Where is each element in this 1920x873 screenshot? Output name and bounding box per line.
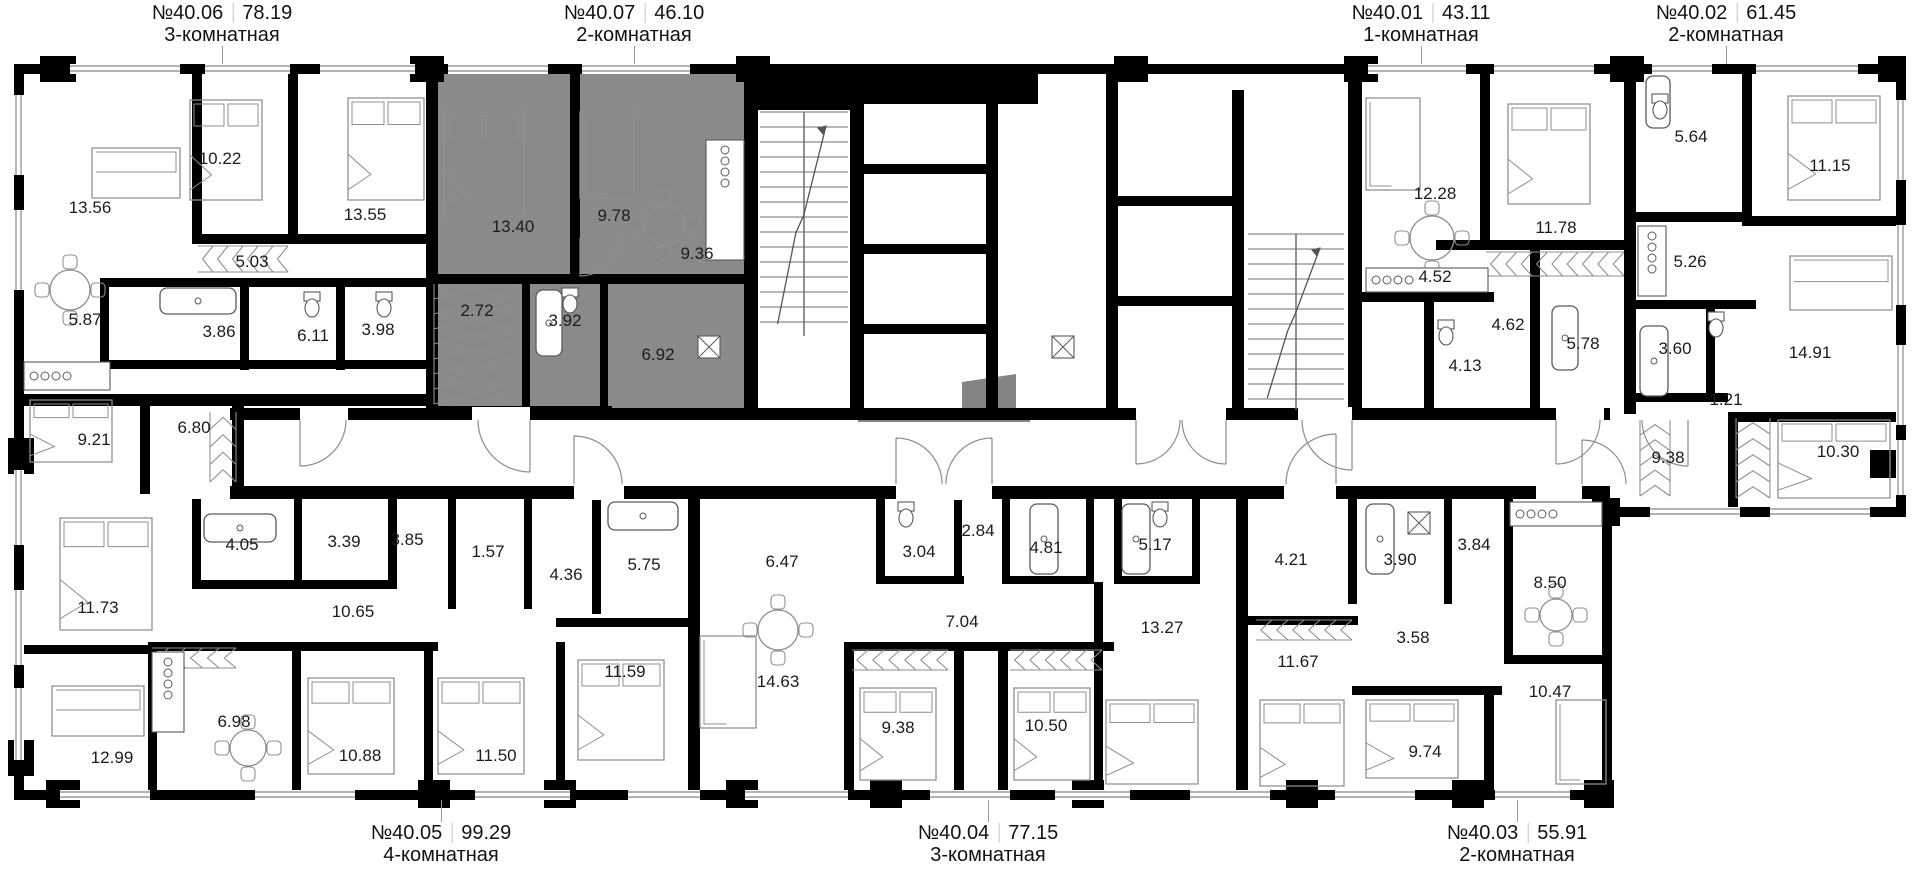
apartment-total-area: 61.45 — [1737, 2, 1796, 24]
wall-segment — [1192, 499, 1200, 579]
apartment-total-area: 46.10 — [645, 2, 704, 24]
wall-segment — [22, 645, 154, 654]
wall-segment — [844, 646, 854, 791]
sofa — [52, 686, 144, 736]
door-arc — [896, 438, 942, 484]
door-arc — [1286, 434, 1336, 484]
wall-segment — [1106, 64, 1118, 414]
wall-segment — [1094, 582, 1103, 791]
wall-segment — [100, 278, 438, 287]
bed — [1366, 700, 1458, 778]
bed — [1014, 739, 1037, 771]
stairs — [1267, 248, 1320, 398]
column — [410, 56, 444, 82]
column — [1286, 780, 1318, 808]
door-opening — [1136, 407, 1226, 421]
bed — [1260, 700, 1344, 786]
wall-segment — [100, 360, 438, 369]
wall-segment — [1742, 216, 1906, 226]
door-opening — [1536, 485, 1582, 500]
door-arc — [1302, 420, 1352, 470]
door-arc — [1582, 440, 1626, 484]
apartment-number: №40.02 — [1656, 2, 1737, 24]
wall-segment — [288, 72, 298, 242]
apartment-number: №40.07 — [564, 2, 645, 24]
apartment-number: №40.06 — [152, 2, 233, 24]
wall-segment — [140, 394, 150, 494]
wall-segment — [1352, 686, 1502, 695]
sofa — [1366, 98, 1420, 190]
wall-segment — [192, 234, 438, 244]
apartment-type: 4-комнатная — [371, 844, 512, 866]
wall-segment — [1636, 300, 1756, 309]
bed — [60, 518, 152, 630]
wall-segment — [858, 324, 990, 334]
apartment-number: №40.05 — [371, 822, 452, 844]
wall-segment — [954, 499, 962, 579]
wardrobe — [852, 650, 948, 670]
apartment-label-40.07[interactable]: №40.0746.102-комнатная — [564, 2, 705, 46]
apartment-type: 1-комнатная — [1351, 24, 1490, 46]
wall-segment — [850, 64, 864, 414]
floor-plan-drawing — [0, 0, 1920, 873]
bed — [1782, 424, 1886, 441]
wall-segment — [556, 642, 565, 791]
wall-segment — [954, 646, 964, 791]
apartment-40.07-highlight[interactable] — [432, 74, 744, 414]
wall-segment — [1114, 499, 1122, 579]
apartment-label-40.06[interactable]: №40.0678.193-комнатная — [152, 2, 293, 46]
chair — [743, 623, 757, 637]
wall-segment — [432, 274, 754, 284]
apartment-label-40.01[interactable]: №40.0143.111-комнатная — [1351, 2, 1490, 46]
chair — [771, 595, 785, 609]
wardrobe — [1486, 252, 1624, 276]
wall-segment — [570, 72, 580, 278]
chair — [267, 741, 281, 755]
bed — [582, 664, 660, 686]
dining-table — [230, 730, 266, 766]
kitchen-counter — [152, 652, 184, 732]
column — [736, 56, 770, 82]
door-opening — [1284, 485, 1336, 500]
bathtub — [608, 502, 678, 530]
kitchen-counter — [1638, 226, 1666, 296]
wall-segment — [592, 499, 601, 614]
bed — [1110, 704, 1194, 722]
bathtub — [160, 288, 236, 314]
door-arc — [1182, 420, 1226, 464]
wall-segment — [556, 618, 692, 627]
chair — [241, 767, 255, 781]
wall-segment — [1118, 296, 1238, 306]
stairs — [1312, 248, 1320, 256]
wall-segment — [876, 499, 885, 579]
bathtub — [1366, 504, 1394, 574]
column — [418, 780, 450, 808]
column — [1452, 780, 1484, 808]
sofa — [700, 636, 756, 728]
wall-segment — [1348, 499, 1357, 604]
toilet — [305, 299, 319, 317]
sofa — [1560, 704, 1580, 780]
bed — [194, 104, 258, 126]
wall-segment — [1636, 212, 1752, 222]
wall-segment — [294, 499, 302, 587]
chair — [1549, 632, 1563, 646]
bed — [1508, 104, 1590, 204]
chair — [241, 715, 255, 729]
apartment-total-area: 55.91 — [1528, 822, 1587, 844]
column — [1610, 56, 1644, 82]
wall-segment — [1624, 64, 1636, 414]
bathtub — [1552, 306, 1578, 370]
toilet — [899, 509, 913, 527]
bed — [352, 102, 420, 124]
bed — [1788, 153, 1816, 189]
wall-segment — [1444, 499, 1452, 604]
dining-table — [1410, 216, 1454, 260]
bed — [860, 688, 936, 780]
toilet — [563, 295, 577, 313]
toilet — [1439, 327, 1453, 345]
wall-segment — [388, 499, 397, 587]
chair — [1549, 584, 1563, 598]
apartment-type: 2-комнатная — [564, 24, 705, 46]
bed — [34, 404, 108, 418]
chair — [1425, 201, 1439, 215]
wall-segment — [1530, 250, 1540, 410]
bed — [1106, 746, 1134, 775]
bed — [1370, 704, 1454, 721]
door-opening — [1556, 407, 1604, 421]
wall-segment — [1232, 90, 1244, 414]
door-opening — [896, 485, 992, 500]
apartment-label-40.05[interactable]: №40.0599.294-комнатная — [371, 822, 512, 866]
bed — [860, 739, 883, 771]
toilet — [1653, 101, 1667, 119]
chair — [799, 623, 813, 637]
chair — [35, 283, 49, 297]
apartment-number: №40.04 — [918, 822, 999, 844]
door-opening — [472, 407, 530, 421]
bed — [1788, 96, 1880, 200]
wall-segment — [1424, 292, 1434, 410]
apartment-type: 3-комнатная — [152, 24, 293, 46]
wall-segment — [858, 244, 990, 254]
apartment-total-area: 77.15 — [999, 822, 1058, 844]
apartment-number: №40.01 — [1351, 2, 1432, 24]
wall-segment — [1236, 499, 1248, 791]
wardrobe — [1010, 650, 1102, 670]
sofa — [1794, 260, 1888, 282]
wall-segment — [192, 499, 201, 587]
wall-segment — [448, 499, 456, 609]
bed — [1508, 159, 1533, 194]
door-arc — [946, 438, 992, 484]
dining-table — [758, 610, 798, 650]
toilet — [1709, 319, 1723, 337]
wall-segment — [336, 278, 345, 370]
wall-segment — [1484, 686, 1494, 791]
chair — [1525, 608, 1539, 622]
bathtub — [204, 514, 276, 542]
bed — [1264, 704, 1340, 723]
bed — [1106, 700, 1198, 784]
column — [1114, 56, 1148, 82]
bed — [1014, 688, 1090, 780]
wall-segment — [744, 64, 758, 420]
wall-segment — [1602, 507, 1612, 800]
bed — [1778, 463, 1812, 490]
wardrobe — [1736, 418, 1770, 498]
wall-segment — [1504, 655, 1604, 664]
wardrobe — [1640, 420, 1670, 496]
dining-table — [1540, 599, 1572, 631]
door-opening — [1298, 407, 1352, 421]
bed — [348, 98, 424, 200]
bathtub — [536, 290, 562, 356]
wall-segment — [524, 499, 532, 609]
wall-segment — [998, 646, 1008, 791]
bathtub — [1640, 326, 1668, 396]
wall-segment — [1118, 196, 1238, 206]
door-opening — [300, 407, 348, 421]
bathtub — [1030, 504, 1058, 574]
chair — [1573, 608, 1587, 622]
bed — [578, 660, 664, 760]
bed — [1512, 108, 1586, 130]
bed — [438, 731, 464, 765]
wall-segment — [292, 645, 301, 791]
wall-segment — [148, 642, 438, 651]
wall-segment — [858, 164, 990, 174]
bed — [30, 400, 112, 462]
toilet — [1153, 509, 1167, 527]
sofa — [1556, 700, 1606, 784]
apartment-label-40.02[interactable]: №40.0261.452-комнатная — [1656, 2, 1797, 46]
bed — [1366, 743, 1394, 770]
bed — [348, 154, 371, 190]
apartment-type: 2-комнатная — [1656, 24, 1797, 46]
bed — [438, 678, 524, 774]
floor-plan-page: №40.0678.193-комнатная13.5610.2213.555.0… — [0, 0, 1920, 873]
bed — [864, 692, 932, 712]
wall-segment — [192, 580, 397, 589]
wall-segment — [1114, 576, 1200, 584]
wall-segment — [1002, 576, 1094, 584]
apartment-number: №40.03 — [1447, 822, 1528, 844]
apartment-label-40.04[interactable]: №40.0477.153-комнатная — [918, 822, 1059, 866]
chair — [63, 255, 77, 269]
bed — [308, 731, 334, 765]
wall-segment — [858, 64, 1038, 104]
chair — [1395, 231, 1409, 245]
bed — [60, 580, 88, 619]
bed — [64, 522, 148, 547]
sofa — [92, 148, 180, 198]
bathtub — [1122, 504, 1150, 574]
chair — [771, 651, 785, 665]
kitchen-counter — [24, 362, 110, 390]
bed — [308, 678, 394, 774]
bed — [312, 682, 390, 703]
sofa — [56, 690, 140, 710]
apartment-type: 3-комнатная — [918, 844, 1059, 866]
wall-segment — [1742, 72, 1752, 220]
door-arc — [1136, 420, 1180, 464]
kitchen-counter — [706, 140, 744, 260]
door-arc — [300, 420, 346, 466]
wardrobe — [198, 246, 288, 272]
wall-segment — [240, 278, 249, 370]
toilet — [377, 299, 391, 317]
bed — [442, 682, 520, 703]
chair — [215, 741, 229, 755]
wall-segment — [876, 576, 964, 584]
door-opening — [574, 485, 624, 500]
apartment-label-40.03[interactable]: №40.0355.912-комнатная — [1447, 822, 1588, 866]
bed — [1018, 692, 1086, 712]
door-arc — [478, 420, 530, 472]
wall-segment — [1086, 499, 1094, 579]
apartment-total-area: 43.11 — [1433, 2, 1491, 24]
wall-segment — [426, 64, 438, 420]
wall-segment — [424, 645, 433, 791]
kitchen-counter — [1366, 268, 1488, 292]
sofa — [704, 640, 726, 724]
sofa — [1370, 102, 1392, 186]
bed — [578, 715, 604, 750]
column — [1878, 56, 1906, 82]
dining-table — [50, 270, 90, 310]
sofa — [1790, 256, 1892, 310]
door-arc — [574, 436, 622, 484]
wall-segment — [522, 284, 530, 416]
wall-segment — [600, 284, 608, 416]
chair — [63, 311, 77, 325]
wall-segment — [1480, 72, 1490, 244]
bed — [1260, 747, 1285, 777]
column — [870, 780, 902, 808]
wall-segment — [1348, 64, 1362, 420]
apartment-type: 2-комнатная — [1447, 844, 1588, 866]
apartment-total-area: 99.29 — [452, 822, 511, 844]
wall-segment — [232, 394, 244, 498]
wall-segment — [192, 72, 202, 242]
wall-segment — [1002, 499, 1010, 579]
apartment-total-area: 78.19 — [233, 2, 292, 24]
stairs — [778, 126, 826, 324]
wall-segment — [688, 499, 700, 791]
sofa — [96, 152, 176, 172]
bed — [1792, 100, 1876, 123]
